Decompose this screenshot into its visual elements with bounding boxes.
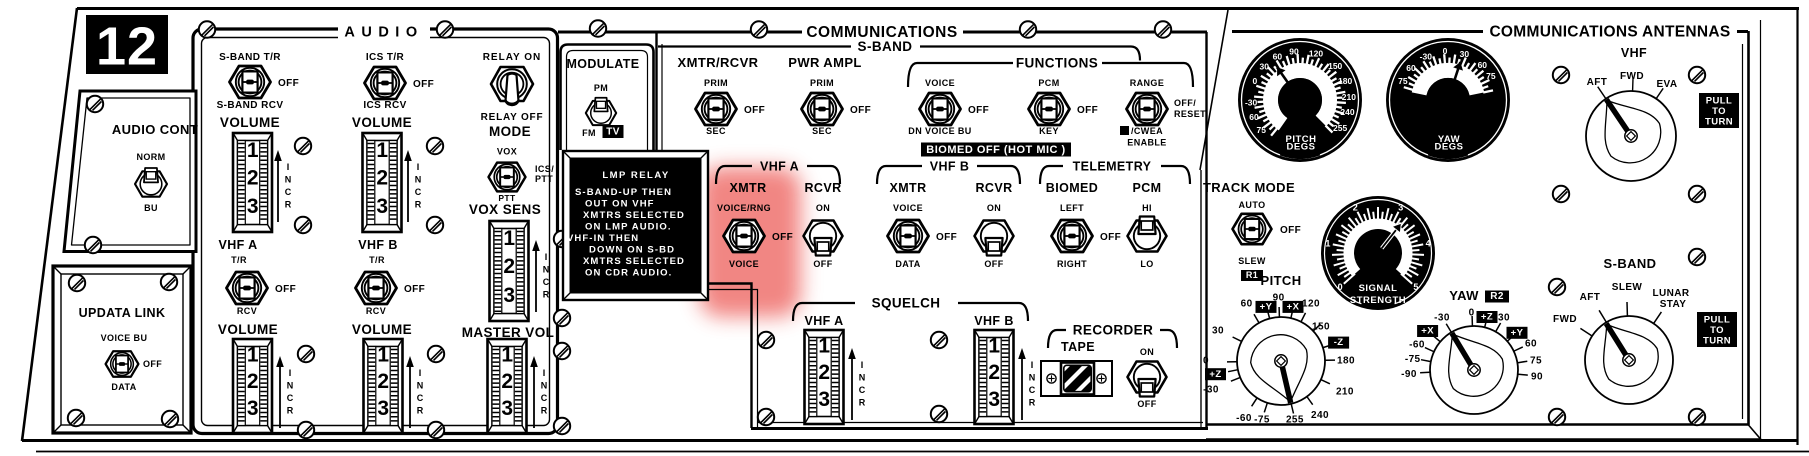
svg-text:PULL: PULL (1706, 96, 1732, 107)
svg-text:OFF: OFF (275, 284, 296, 295)
svg-text:180: 180 (1338, 76, 1352, 86)
svg-text:-60: -60 (1236, 413, 1252, 424)
svg-text:SLEW: SLEW (1238, 256, 1266, 266)
svg-text:150: 150 (1312, 322, 1330, 333)
svg-text:YAW: YAW (1449, 288, 1479, 303)
svg-text:-30: -30 (1420, 51, 1433, 61)
svg-text:C: C (541, 393, 548, 403)
svg-text:ICS T/R: ICS T/R (366, 52, 405, 63)
svg-text:VOICE: VOICE (893, 203, 923, 213)
svg-text:1: 1 (503, 227, 515, 250)
svg-text:120: 120 (1302, 299, 1320, 310)
svg-text:RCVR: RCVR (804, 181, 841, 195)
svg-text:+Z: +Z (1209, 369, 1221, 380)
svg-text:T/R: T/R (369, 255, 385, 265)
svg-text:R1: R1 (1246, 270, 1258, 280)
svg-text:1: 1 (1325, 238, 1330, 248)
svg-text:R: R (285, 200, 292, 210)
svg-text:1: 1 (818, 335, 830, 358)
svg-text:RANGE: RANGE (1130, 78, 1165, 88)
svg-text:255: 255 (1333, 123, 1347, 133)
svg-text:VOICE: VOICE (925, 78, 955, 88)
svg-text:/CWEA: /CWEA (1131, 126, 1163, 136)
svg-text:240: 240 (1340, 107, 1354, 117)
svg-text:ICS/: ICS/ (535, 164, 554, 174)
svg-text:PM: PM (594, 83, 608, 93)
svg-text:PCM: PCM (1038, 78, 1059, 88)
svg-text:DN VOICE BU: DN VOICE BU (908, 126, 971, 136)
svg-text:+Y: +Y (1511, 327, 1524, 338)
svg-text:3: 3 (818, 388, 830, 411)
svg-text:R: R (287, 406, 294, 416)
svg-text:OFF: OFF (772, 232, 793, 243)
svg-text:ON: ON (816, 203, 830, 213)
svg-text:ON CDR AUDIO.: ON CDR AUDIO. (585, 268, 672, 279)
svg-text:SQUELCH: SQUELCH (872, 296, 941, 311)
svg-text:TO: TO (1712, 106, 1726, 117)
svg-text:5: 5 (1413, 282, 1418, 292)
svg-text:OFF: OFF (413, 79, 434, 90)
svg-text:N: N (859, 373, 866, 383)
svg-text:RELAY ON: RELAY ON (483, 52, 542, 63)
svg-text:XMTRS SELECTED: XMTRS SELECTED (583, 210, 685, 221)
svg-text:2: 2 (376, 167, 388, 190)
svg-text:2: 2 (501, 370, 513, 393)
svg-text:I: I (1031, 360, 1034, 370)
svg-text:MODE: MODE (489, 124, 531, 139)
svg-text:OFF: OFF (968, 105, 989, 116)
svg-text:N: N (417, 381, 424, 391)
svg-text:TRACK MODE: TRACK MODE (1203, 180, 1295, 195)
svg-text:RCVR: RCVR (975, 181, 1012, 195)
svg-text:VOLUME: VOLUME (220, 115, 280, 130)
svg-text:180: 180 (1337, 356, 1355, 367)
svg-text:N: N (543, 265, 550, 275)
svg-text:30: 30 (1498, 313, 1510, 324)
svg-text:OFF: OFF (984, 259, 1003, 269)
svg-text:4: 4 (1426, 238, 1431, 248)
svg-text:AUTO: AUTO (1239, 200, 1266, 210)
svg-text:75: 75 (1530, 356, 1542, 367)
svg-text:C: C (287, 393, 294, 403)
svg-text:75: 75 (1398, 76, 1408, 86)
svg-text:3: 3 (247, 195, 259, 218)
svg-text:1: 1 (247, 139, 259, 162)
svg-text:LO: LO (1140, 259, 1153, 269)
svg-text:-Z: -Z (1334, 337, 1344, 348)
svg-text:AFT: AFT (1587, 77, 1608, 88)
svg-text:210: 210 (1336, 387, 1354, 398)
svg-text:VHF A: VHF A (804, 314, 843, 328)
svg-text:OFF: OFF (1100, 232, 1121, 243)
svg-text:C: C (285, 187, 292, 197)
svg-text:+Z: +Z (1481, 312, 1493, 323)
svg-text:BIOMED: BIOMED (1046, 181, 1098, 195)
svg-text:OFF: OFF (1077, 105, 1098, 116)
svg-text:OFF: OFF (278, 78, 299, 89)
svg-text:PITCH: PITCH (1261, 273, 1302, 288)
svg-text:TV: TV (606, 127, 620, 138)
svg-text:-90: -90 (1401, 369, 1417, 380)
svg-text:1: 1 (247, 344, 259, 367)
svg-text:AUDIO: AUDIO (344, 25, 423, 41)
svg-text:EVA: EVA (1656, 79, 1677, 90)
svg-text:C: C (543, 277, 550, 287)
svg-text:VOX: VOX (497, 147, 517, 157)
svg-text:BIOMED OFF (HOT MIC ): BIOMED OFF (HOT MIC ) (926, 144, 1065, 156)
svg-text:OFF: OFF (744, 105, 765, 116)
svg-text:TURN: TURN (1703, 336, 1731, 347)
svg-text:PRIM: PRIM (704, 78, 728, 88)
svg-text:SEC: SEC (812, 126, 832, 136)
svg-text:-75: -75 (1254, 415, 1270, 426)
svg-text:90: 90 (1289, 46, 1299, 56)
svg-text:2: 2 (818, 361, 830, 384)
svg-text:0: 0 (1203, 356, 1209, 367)
svg-text:2: 2 (988, 361, 1000, 384)
svg-text:VOICE BU: VOICE BU (101, 333, 148, 343)
svg-text:0: 0 (1338, 282, 1343, 292)
svg-text:FUNCTIONS: FUNCTIONS (1016, 56, 1098, 71)
svg-text:75: 75 (1486, 71, 1496, 81)
svg-text:DEGS: DEGS (1435, 141, 1464, 152)
svg-text:PRIM: PRIM (810, 78, 834, 88)
svg-text:60: 60 (1249, 112, 1259, 122)
svg-text:60: 60 (1406, 63, 1416, 73)
svg-text:RESET: RESET (1174, 109, 1206, 119)
svg-text:R: R (417, 406, 424, 416)
svg-text:DATA: DATA (111, 382, 136, 392)
svg-text:3: 3 (503, 284, 515, 307)
svg-text:3: 3 (377, 397, 389, 420)
svg-text:DEGS: DEGS (1287, 141, 1316, 152)
svg-text:RCV: RCV (237, 306, 257, 316)
svg-text:I: I (289, 368, 292, 378)
svg-text:VHF A: VHF A (218, 238, 257, 252)
svg-text:60: 60 (1478, 60, 1488, 70)
svg-text:STAY: STAY (1660, 299, 1687, 310)
svg-text:I: I (287, 162, 290, 172)
svg-text:RCV: RCV (366, 306, 386, 316)
svg-text:C: C (417, 393, 424, 403)
svg-text:0: 0 (1253, 76, 1258, 86)
svg-text:FWD: FWD (1620, 71, 1644, 82)
svg-text:AFT: AFT (1580, 292, 1601, 303)
svg-text:PULL: PULL (1704, 315, 1730, 326)
svg-text:30: 30 (1460, 49, 1470, 59)
svg-text:2: 2 (503, 255, 515, 278)
svg-text:LUNAR: LUNAR (1653, 288, 1690, 299)
svg-text:OFF: OFF (1280, 225, 1301, 236)
svg-text:R: R (543, 290, 550, 300)
svg-text:KEY: KEY (1039, 126, 1059, 136)
svg-text:RIGHT: RIGHT (1057, 259, 1087, 269)
svg-text:90: 90 (1531, 372, 1543, 383)
svg-text:OFF: OFF (143, 359, 162, 369)
svg-text:30: 30 (1259, 62, 1269, 72)
svg-text:-30: -30 (1434, 313, 1450, 324)
svg-text:RELAY OFF: RELAY OFF (481, 112, 544, 123)
svg-text:STRENGTH: STRENGTH (1350, 295, 1406, 306)
svg-text:ENABLE: ENABLE (1127, 138, 1166, 148)
svg-text:75: 75 (1256, 125, 1266, 135)
svg-text:C: C (859, 385, 866, 395)
svg-text:0: 0 (1443, 46, 1448, 56)
svg-text:0: 0 (1469, 308, 1475, 319)
svg-text:VOLUME: VOLUME (352, 115, 412, 130)
svg-text:1: 1 (988, 335, 1000, 358)
svg-text:C: C (1029, 385, 1036, 395)
svg-text:1: 1 (376, 139, 388, 162)
svg-text:30: 30 (1212, 326, 1224, 337)
svg-text:T/R: T/R (231, 255, 247, 265)
svg-text:FM: FM (582, 128, 596, 138)
svg-text:XMTR: XMTR (889, 181, 926, 195)
svg-text:RECORDER: RECORDER (1073, 323, 1153, 338)
svg-text:S-BAND RCV: S-BAND RCV (217, 100, 284, 111)
svg-text:R2: R2 (1490, 291, 1504, 302)
svg-text:1: 1 (377, 344, 389, 367)
svg-text:3: 3 (376, 195, 388, 218)
svg-text:S-BAND-UP THEN: S-BAND-UP THEN (575, 187, 672, 198)
svg-text:255: 255 (1286, 415, 1304, 426)
svg-text:2: 2 (377, 370, 389, 393)
svg-text:S-BAND: S-BAND (1604, 256, 1657, 271)
svg-text:TELEMETRY: TELEMETRY (1073, 160, 1152, 174)
svg-text:XMTRS SELECTED: XMTRS SELECTED (583, 256, 685, 267)
svg-text:OFF: OFF (850, 105, 871, 116)
svg-text:+Y: +Y (1260, 302, 1273, 313)
svg-text:3: 3 (501, 397, 513, 420)
svg-text:SEC: SEC (706, 126, 726, 136)
svg-text:+X: +X (1421, 326, 1434, 337)
svg-text:ON: ON (987, 203, 1001, 213)
svg-text:210: 210 (1342, 92, 1356, 102)
svg-text:VOLUME: VOLUME (218, 322, 278, 337)
svg-text:TURN: TURN (1705, 117, 1733, 128)
svg-text:VHF B: VHF B (358, 238, 398, 252)
svg-text:120: 120 (1309, 49, 1323, 59)
svg-text:60: 60 (1273, 52, 1283, 62)
svg-text:DATA: DATA (895, 259, 920, 269)
svg-text:S-BAND T/R: S-BAND T/R (219, 52, 281, 63)
svg-text:-30: -30 (1203, 385, 1219, 396)
svg-text:I: I (419, 368, 422, 378)
svg-text:BU: BU (144, 203, 158, 213)
svg-text:VOX SENS: VOX SENS (469, 202, 541, 217)
svg-text:OFF: OFF (936, 232, 957, 243)
svg-text:VHF-IN THEN: VHF-IN THEN (567, 233, 639, 244)
svg-text:LEFT: LEFT (1060, 203, 1084, 213)
svg-text:240: 240 (1311, 410, 1329, 421)
svg-text:R: R (859, 398, 866, 408)
svg-text:R: R (415, 200, 422, 210)
svg-text:MODULATE: MODULATE (566, 57, 639, 71)
svg-text:3: 3 (247, 397, 259, 420)
svg-text:+X: +X (1287, 302, 1300, 313)
svg-text:SIGNAL: SIGNAL (1359, 283, 1398, 294)
svg-text:3: 3 (988, 388, 1000, 411)
svg-text:VHF A: VHF A (760, 160, 799, 174)
svg-text:TO: TO (1710, 325, 1724, 336)
svg-text:SLEW: SLEW (1612, 282, 1643, 293)
svg-text:PCM: PCM (1133, 181, 1162, 195)
svg-text:PWR AMPL: PWR AMPL (788, 55, 862, 70)
svg-text:60: 60 (1241, 299, 1253, 310)
svg-text:I: I (543, 368, 546, 378)
svg-text:TAPE: TAPE (1061, 340, 1095, 354)
svg-text:OFF: OFF (813, 259, 832, 269)
svg-text:3: 3 (1398, 202, 1403, 212)
svg-text:VOLUME: VOLUME (352, 322, 412, 337)
svg-text:C: C (415, 187, 422, 197)
svg-text:N: N (1029, 373, 1036, 383)
svg-text:I: I (861, 360, 864, 370)
svg-text:UPDATA LINK: UPDATA LINK (79, 306, 166, 320)
svg-text:12: 12 (96, 17, 158, 77)
svg-text:OFF/: OFF/ (1174, 98, 1196, 108)
svg-text:OUT ON VHF: OUT ON VHF (585, 199, 655, 210)
svg-text:N: N (541, 381, 548, 391)
svg-text:N: N (287, 381, 294, 391)
svg-text:FWD: FWD (1553, 314, 1577, 325)
svg-text:PTT: PTT (535, 174, 553, 184)
svg-text:XMTR/RCVR: XMTR/RCVR (678, 55, 759, 70)
svg-text:-60: -60 (1409, 340, 1425, 351)
svg-text:R: R (1029, 398, 1036, 408)
svg-text:N: N (285, 175, 292, 185)
svg-text:VHF B: VHF B (974, 314, 1014, 328)
svg-text:LMP RELAY: LMP RELAY (602, 170, 669, 181)
svg-text:NORM: NORM (136, 152, 165, 162)
svg-text:2: 2 (247, 167, 259, 190)
svg-text:-30: -30 (1245, 98, 1258, 108)
svg-text:ICS RCV: ICS RCV (363, 100, 406, 111)
svg-text:VOICE: VOICE (729, 259, 759, 269)
svg-text:I: I (545, 252, 548, 262)
svg-text:DOWN ON S-BD: DOWN ON S-BD (589, 245, 675, 256)
svg-text:ON: ON (1140, 347, 1154, 357)
svg-text:2: 2 (1353, 202, 1358, 212)
svg-text:R: R (541, 406, 548, 416)
svg-text:VOICE/RNG: VOICE/RNG (717, 203, 771, 213)
svg-text:ON LMP AUDIO.: ON LMP AUDIO. (585, 222, 672, 233)
svg-text:COMMUNICATIONS ANTENNAS: COMMUNICATIONS ANTENNAS (1489, 24, 1730, 41)
svg-text:OFF: OFF (404, 284, 425, 295)
svg-text:S-BAND: S-BAND (858, 39, 913, 54)
svg-text:VHF B: VHF B (930, 160, 970, 174)
svg-text:-75: -75 (1405, 354, 1421, 365)
svg-text:VHF: VHF (1621, 46, 1647, 60)
svg-text:150: 150 (1328, 61, 1342, 71)
svg-text:HI: HI (1142, 203, 1152, 213)
svg-text:AUDIO CONT: AUDIO CONT (112, 122, 198, 137)
svg-text:60: 60 (1525, 339, 1537, 350)
svg-text:2: 2 (247, 370, 259, 393)
svg-text:OFF: OFF (1137, 399, 1156, 409)
svg-text:1: 1 (501, 344, 513, 367)
svg-text:XMTR: XMTR (729, 181, 766, 195)
svg-text:N: N (415, 175, 422, 185)
svg-text:I: I (417, 162, 420, 172)
